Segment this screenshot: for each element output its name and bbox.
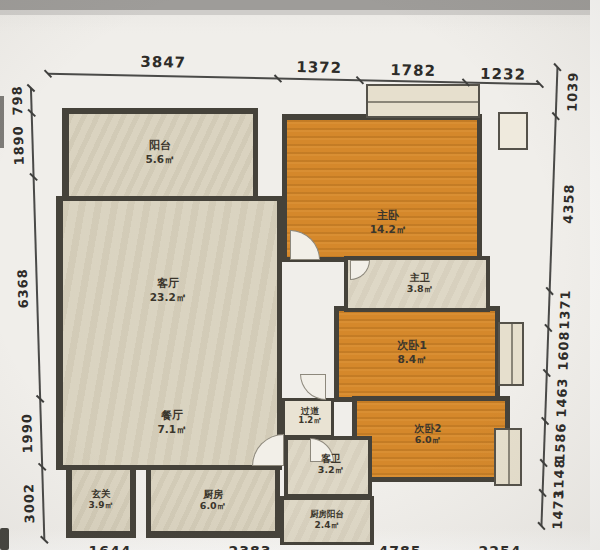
dim-label: 3847 bbox=[140, 53, 186, 72]
dim-label: 1371 bbox=[557, 289, 573, 330]
dim-label: 4358 bbox=[561, 183, 577, 224]
room-label-bedroom2: 次卧18.4㎡ bbox=[397, 340, 427, 365]
dim-label: 1890 bbox=[11, 125, 27, 166]
dim-label-clipped: 2383 bbox=[229, 543, 272, 550]
window-mullion bbox=[511, 324, 513, 384]
room-label-dining: 餐厅7.1㎡ bbox=[157, 410, 186, 435]
dim-group-top: 3847 1372 1782 1232 bbox=[0, 0, 600, 101]
dim-label: 1232 bbox=[480, 65, 526, 84]
dim-label: 1039 bbox=[564, 71, 580, 112]
room-label-guest-bath: 客卫3.2㎡ bbox=[318, 453, 344, 475]
dim-label-clipped: 4785 bbox=[379, 543, 422, 550]
bay-window-bedroom3 bbox=[494, 428, 522, 486]
room-label-entry: 玄关3.9㎡ bbox=[89, 489, 114, 510]
room-label-master-bedroom: 主卧14.2㎡ bbox=[370, 210, 406, 235]
dim-label: 1463 bbox=[554, 377, 570, 418]
photo-artifact bbox=[0, 528, 9, 550]
bay-window-bedroom2 bbox=[498, 322, 524, 386]
floorplan-photo: 阳台5.6㎡ 客厅23.2㎡ 餐厅7.1㎡ 玄关3.9㎡ 厨房6.0㎡ 厨房阳台… bbox=[0, 0, 600, 550]
dim-label-clipped: 1644 bbox=[89, 543, 132, 550]
dim-line-left bbox=[30, 88, 45, 540]
room-label-master-bath: 主卫3.8㎡ bbox=[407, 272, 433, 294]
dim-label: 1372 bbox=[296, 58, 342, 77]
window-mullion bbox=[508, 430, 510, 484]
dim-label: 798 bbox=[9, 85, 25, 116]
room-label-corridor: 过道1.2㎡ bbox=[298, 406, 322, 426]
room-label-kitchen-balcony: 厨房阳台2.4㎡ bbox=[310, 510, 344, 530]
room-label-balcony: 阳台5.6㎡ bbox=[145, 140, 174, 165]
door-arc bbox=[300, 374, 326, 400]
dim-label-clipped: 2254 bbox=[479, 543, 522, 550]
room-label-living: 客厅23.2㎡ bbox=[150, 278, 186, 303]
dim-label: 1473 bbox=[550, 489, 566, 530]
dim-label: 1608 bbox=[555, 330, 571, 371]
room-label-kitchen: 厨房6.0㎡ bbox=[200, 489, 226, 511]
dim-label: 1990 bbox=[19, 413, 35, 454]
dim-label: 3002 bbox=[21, 483, 37, 524]
dim-label: 1586 bbox=[552, 422, 568, 463]
dim-label: 6368 bbox=[15, 268, 31, 309]
window-mullion bbox=[368, 101, 478, 103]
room-label-bedroom3: 次卧26.0㎡ bbox=[415, 423, 442, 445]
dim-label: 1782 bbox=[390, 61, 436, 80]
window-master-right bbox=[498, 112, 528, 150]
